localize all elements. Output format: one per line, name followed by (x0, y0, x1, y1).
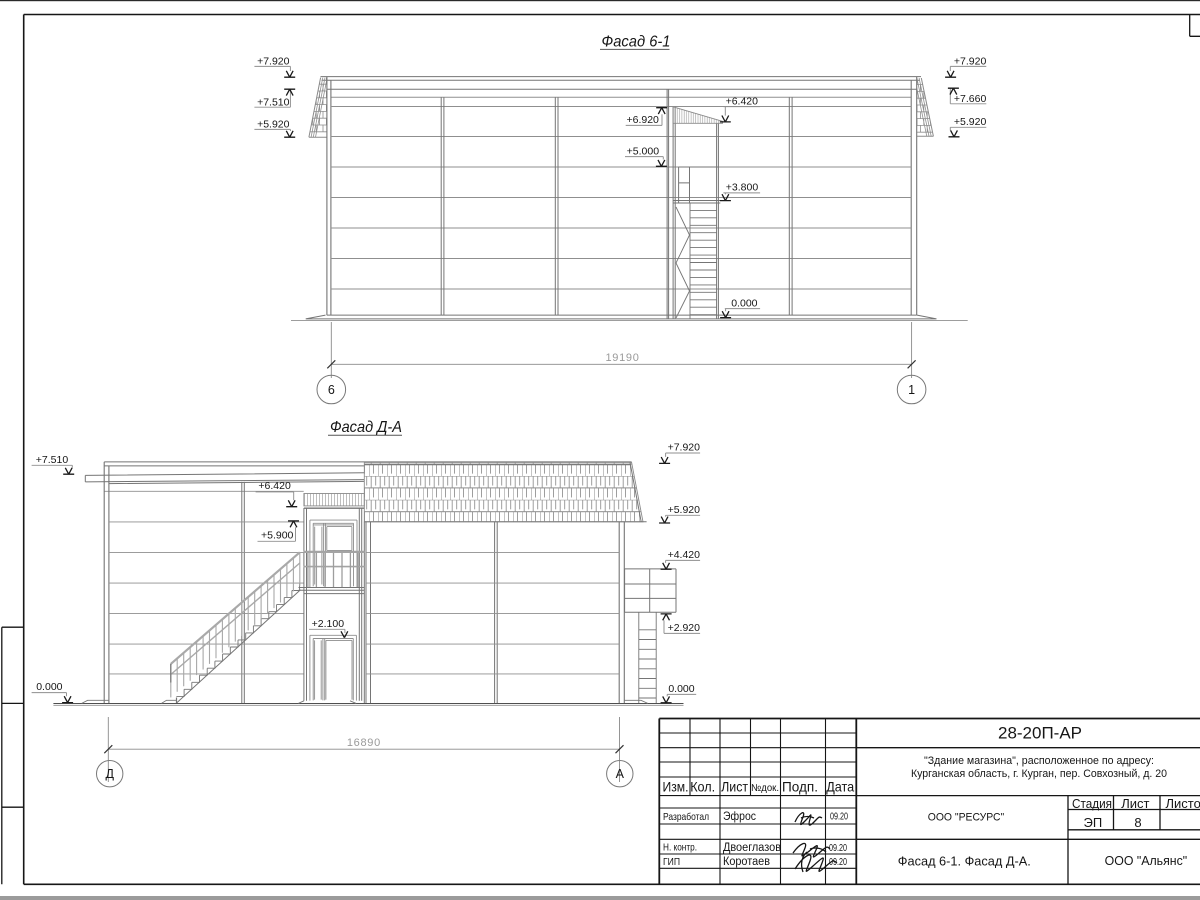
svg-text:Двоеглазов: Двоеглазов (723, 842, 781, 854)
svg-text:1: 1 (908, 383, 915, 397)
svg-text:Д: Д (105, 767, 114, 781)
svg-text:ГИП: ГИП (663, 856, 680, 868)
svg-text:0.000: 0.000 (731, 297, 757, 309)
svg-text:Листов: Листов (1166, 796, 1200, 811)
svg-text:09.20: 09.20 (830, 812, 848, 823)
svg-text:Коротаев: Коротаев (723, 856, 770, 868)
svg-text:+6.420: +6.420 (258, 480, 291, 492)
svg-text:Фасад 6-1. Фасад Д-А.: Фасад 6-1. Фасад Д-А. (898, 855, 1031, 869)
svg-text:№док.: №док. (751, 783, 779, 794)
svg-text:+7.510: +7.510 (36, 454, 69, 466)
svg-text:"Здание магазина", расположенн: "Здание магазина", расположенное по адре… (924, 755, 1154, 767)
svg-text:+5.000: +5.000 (627, 145, 660, 157)
svg-text:Фасад 6-1: Фасад 6-1 (602, 33, 671, 50)
svg-text:09.20: 09.20 (829, 843, 847, 854)
svg-text:8: 8 (1134, 815, 1141, 830)
svg-text:Н. контр.: Н. контр. (663, 842, 697, 854)
svg-text:28-20П-АР: 28-20П-АР (998, 724, 1082, 742)
svg-text:ООО "Альянс": ООО "Альянс" (1105, 854, 1188, 868)
svg-text:+5.920: +5.920 (668, 504, 701, 516)
svg-text:0.000: 0.000 (668, 683, 694, 695)
svg-text:16890: 16890 (347, 737, 381, 749)
svg-text:Разработал: Разработал (663, 811, 709, 823)
svg-text:+2.100: +2.100 (312, 618, 345, 630)
svg-text:+7.920: +7.920 (257, 56, 290, 68)
svg-text:Изм.: Изм. (663, 779, 689, 795)
svg-text:+7.920: +7.920 (954, 56, 987, 68)
svg-text:Курганская область, г. Курган,: Курганская область, г. Курган, пер. Совх… (911, 768, 1167, 780)
svg-text:0.000: 0.000 (36, 681, 62, 693)
svg-text:+5.920: +5.920 (257, 119, 290, 131)
svg-text:09.20: 09.20 (829, 857, 847, 868)
svg-text:+5.920: +5.920 (954, 116, 987, 128)
svg-text:+3.800: +3.800 (726, 182, 759, 194)
svg-text:Стадия: Стадия (1072, 796, 1112, 811)
svg-text:Фасад Д-А: Фасад Д-А (330, 419, 402, 436)
svg-text:Дата: Дата (826, 779, 854, 795)
svg-text:+6.920: +6.920 (626, 114, 659, 126)
svg-text:Эфрос: Эфрос (723, 811, 756, 823)
svg-text:+4.420: +4.420 (668, 549, 701, 561)
svg-text:+6.420: +6.420 (726, 95, 759, 107)
svg-text:А: А (616, 767, 625, 781)
svg-text:19190: 19190 (605, 352, 639, 364)
svg-text:Лист: Лист (721, 779, 749, 795)
svg-text:ЭП: ЭП (1084, 815, 1103, 830)
svg-text:6: 6 (328, 383, 335, 397)
svg-text:Подп.: Подп. (782, 779, 818, 795)
svg-text:Кол.: Кол. (690, 779, 715, 795)
svg-text:+7.920: +7.920 (668, 442, 701, 454)
svg-text:+5.900: +5.900 (261, 530, 294, 542)
svg-text:ООО "РЕСУРС": ООО "РЕСУРС" (928, 811, 1005, 823)
svg-text:+2.920: +2.920 (668, 622, 701, 634)
svg-text:Лист: Лист (1121, 796, 1149, 811)
